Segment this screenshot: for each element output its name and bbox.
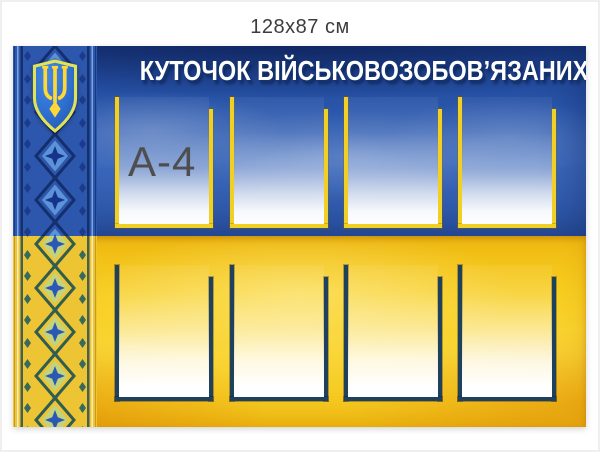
pocket-window xyxy=(119,265,209,397)
document-pocket-top-4 xyxy=(458,97,556,228)
pocket-window xyxy=(462,97,552,224)
ukrainian-trident-shield-icon xyxy=(29,58,81,134)
pocket-border-bottom xyxy=(230,397,328,401)
pocket-border-bottom xyxy=(230,224,328,228)
product-photo: 128x87 см xyxy=(0,0,600,452)
pocket-border-bottom xyxy=(458,224,556,228)
pocket-border-right xyxy=(324,277,328,401)
pocket-border-bottom xyxy=(115,224,213,228)
pocket-border-right xyxy=(552,277,556,401)
pocket-border-bottom xyxy=(344,224,442,228)
pocket-border-right xyxy=(438,109,442,228)
pocket-size-label: A-4 xyxy=(128,141,196,183)
vyshyvanka-embroidery-strip-icon xyxy=(13,46,97,427)
document-pocket-bottom-4 xyxy=(458,265,556,401)
pocket-border-right xyxy=(438,277,442,401)
pocket-window xyxy=(234,97,324,224)
pocket-border-right xyxy=(324,109,328,228)
pocket-window xyxy=(234,265,324,397)
size-caption: 128x87 см xyxy=(0,16,600,39)
document-pocket-bottom-1 xyxy=(115,265,213,401)
document-pocket-top-2 xyxy=(230,97,328,228)
info-board: КУТОЧОК ВІЙСЬКОВОЗОБОВ’ЯЗАНИХ A-4 xyxy=(13,46,586,427)
pocket-border-bottom xyxy=(458,397,556,401)
pocket-border-bottom xyxy=(115,397,213,401)
pocket-border-bottom xyxy=(344,397,442,401)
pocket-window xyxy=(348,97,438,224)
pocket-window xyxy=(462,265,552,397)
pocket-border-right xyxy=(209,109,213,228)
document-pocket-bottom-3 xyxy=(344,265,442,401)
pocket-window xyxy=(348,265,438,397)
board-title: КУТОЧОК ВІЙСЬКОВОЗОБОВ’ЯЗАНИХ xyxy=(97,55,584,87)
board-title-text: КУТОЧОК ВІЙСЬКОВОЗОБОВ’ЯЗАНИХ xyxy=(140,55,586,87)
pocket-border-right xyxy=(552,109,556,228)
document-pocket-top-3 xyxy=(344,97,442,228)
document-pocket-bottom-2 xyxy=(230,265,328,401)
pocket-border-right xyxy=(209,277,213,401)
document-pocket-top-1: A-4 xyxy=(115,97,213,228)
